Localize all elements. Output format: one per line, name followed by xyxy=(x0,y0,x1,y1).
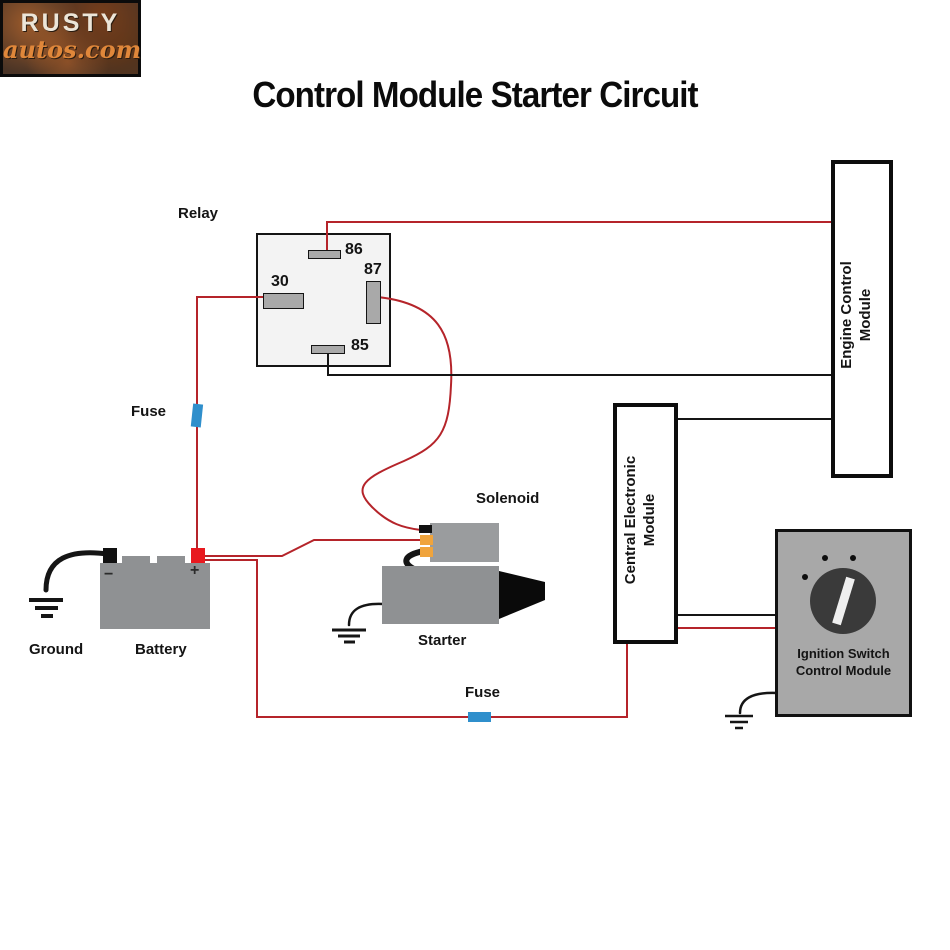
battery-negative-terminal xyxy=(103,548,117,563)
logo-rusty-text: RUSTY xyxy=(3,9,138,38)
battery-cap xyxy=(122,556,150,564)
starter-label: Starter xyxy=(418,632,466,649)
battery-ground-icon xyxy=(29,600,63,616)
solenoid-terminal xyxy=(420,535,433,545)
cable-battery-negative xyxy=(46,553,108,590)
solenoid-label: Solenoid xyxy=(476,490,539,507)
solenoid-terminal xyxy=(420,547,433,557)
rustyautos-logo: RUSTY autos.com xyxy=(0,0,141,77)
battery-minus-sign: − xyxy=(104,566,113,584)
battery-plus-sign: + xyxy=(190,562,199,580)
wiring-layer xyxy=(0,0,950,950)
ignition-position-dot xyxy=(802,574,808,580)
solenoid-box xyxy=(430,523,499,562)
cable-starter-ground xyxy=(349,604,383,625)
ignition-position-dot xyxy=(850,555,856,561)
battery-positive-terminal xyxy=(191,548,205,563)
ignition-position-dot xyxy=(822,555,828,561)
relay-label: Relay xyxy=(178,205,218,222)
ignition-switch-module-label: Ignition Switch Control Module xyxy=(775,646,912,680)
relay-pin-87 xyxy=(366,281,381,324)
relay-pin-30 xyxy=(263,293,304,309)
central-electronic-module-label: Central Electronic Module xyxy=(622,405,662,635)
relay-pin-85 xyxy=(311,345,345,354)
relay-pin-87-label: 87 xyxy=(364,261,382,279)
relay-pin-86 xyxy=(308,250,341,259)
engine-control-module-label: Engine Control Module xyxy=(838,163,878,467)
relay-pin-85-label: 85 xyxy=(351,337,369,355)
starter-box xyxy=(382,566,499,624)
fuse-left-label: Fuse xyxy=(131,403,166,420)
fuse-bottom xyxy=(468,712,491,722)
logo-autoscom-text: autos.com xyxy=(3,35,138,64)
cable-ignition-ground xyxy=(740,693,777,713)
wire-relay85-to-ecm xyxy=(328,352,831,375)
fuse-bottom-label: Fuse xyxy=(465,684,500,701)
relay-pin-30-label: 30 xyxy=(271,273,289,291)
ignition-ground-icon xyxy=(725,716,753,728)
page-title: Control Module Starter Circuit xyxy=(38,74,912,116)
starter-nose-cone xyxy=(499,571,545,619)
fuse-left xyxy=(191,404,203,428)
battery-cap xyxy=(157,556,185,564)
wire-relay86-to-ecm xyxy=(327,222,831,252)
wire-battery-to-solenoid xyxy=(201,540,430,556)
diagram-canvas: Control Module Starter Circuit Relay 86 … xyxy=(0,0,950,950)
solenoid-connector xyxy=(419,525,432,533)
relay-pin-86-label: 86 xyxy=(345,241,363,259)
battery-label: Battery xyxy=(135,641,187,658)
ground-label: Ground xyxy=(29,641,83,658)
starter-ground-icon xyxy=(332,630,366,642)
